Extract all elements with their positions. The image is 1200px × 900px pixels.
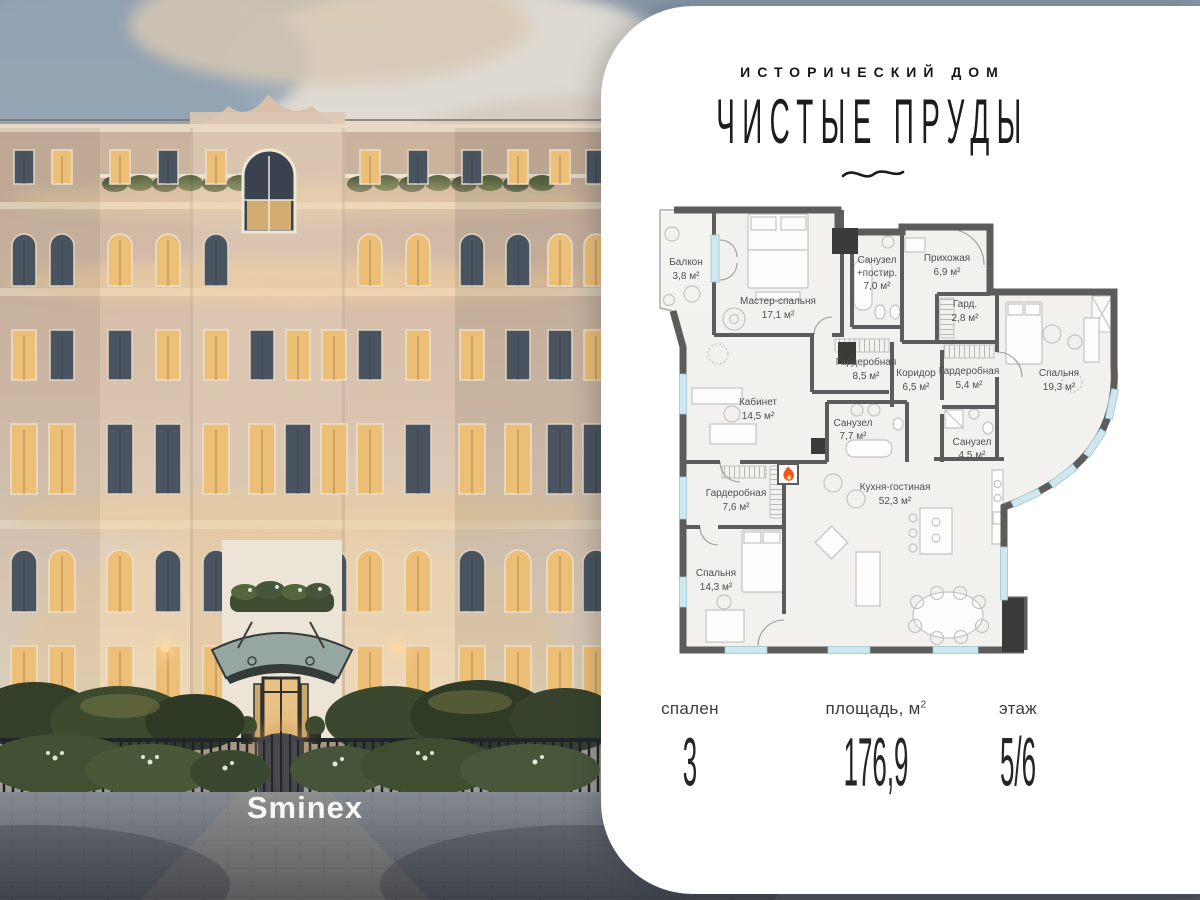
room-name: Коридор [896, 368, 936, 379]
room-area: 2,8 м² [952, 313, 980, 324]
room-area: 19,3 м² [1043, 382, 1076, 393]
room-name: Санузел [953, 437, 992, 448]
room-name: Прихожая [924, 253, 970, 264]
panel-header: ИСТОРИЧЕСКИЙ ДОМ ЧИСТЫЕ ПРУДЫ [600, 0, 1145, 183]
sminex-logo: Sminex [230, 790, 380, 826]
room-name: Балкон [669, 257, 703, 268]
room-area: 7,7 м² [840, 431, 868, 442]
room-area: 14,5 м² [742, 411, 775, 422]
room-area: 14,3 м² [700, 582, 733, 593]
room-name: Гардеробная [706, 487, 767, 499]
project-eyebrow: ИСТОРИЧЕСКИЙ ДОМ [600, 64, 1145, 80]
room-area: 6,9 м² [934, 267, 962, 278]
room-area: 3,8 м² [673, 271, 701, 282]
room-name: Кабинет [739, 396, 777, 408]
room-name: Гард. [953, 299, 977, 310]
room-area: 7,0 м² [864, 281, 892, 292]
squiggle-icon [840, 165, 906, 183]
page-root: Sminex ИСТОРИЧЕСКИЙ ДОМ ЧИСТЫЕ ПРУДЫ [0, 0, 1200, 900]
room-area: 7,6 м² [723, 502, 751, 513]
room-name: Гардеробная [939, 365, 1000, 377]
room-area: 8,5 м² [853, 371, 881, 382]
room-name: Санузел [858, 255, 897, 266]
project-title: ЧИСТЫЕ ПРУДЫ [649, 87, 1096, 159]
room-name: Кухня-гостиная [860, 482, 931, 493]
entrance-balcony-flowers [230, 581, 334, 612]
room-name: Спальня [696, 568, 736, 579]
floor-plan: Балкон 3,8 м² Мастер-спальня 17,1 м² Сан… [652, 202, 1132, 672]
central-arch-window [243, 150, 295, 232]
room-name: Санузел [834, 418, 873, 429]
fireplace-icon [778, 464, 798, 484]
room-name: Гардеробная [836, 356, 897, 368]
wall-lantern [161, 644, 170, 653]
room-area: 17,1 м² [762, 310, 795, 321]
room-area: 6,5 м² [903, 382, 931, 393]
room-area: 4,5 м² [959, 450, 987, 461]
room-name: +постир. [857, 268, 897, 279]
room-name: Спальня [1039, 368, 1079, 379]
room-area: 52,3 м² [879, 496, 912, 507]
room-area: 5,4 м² [956, 380, 984, 391]
room-name: Мастер-спальня [740, 296, 816, 307]
